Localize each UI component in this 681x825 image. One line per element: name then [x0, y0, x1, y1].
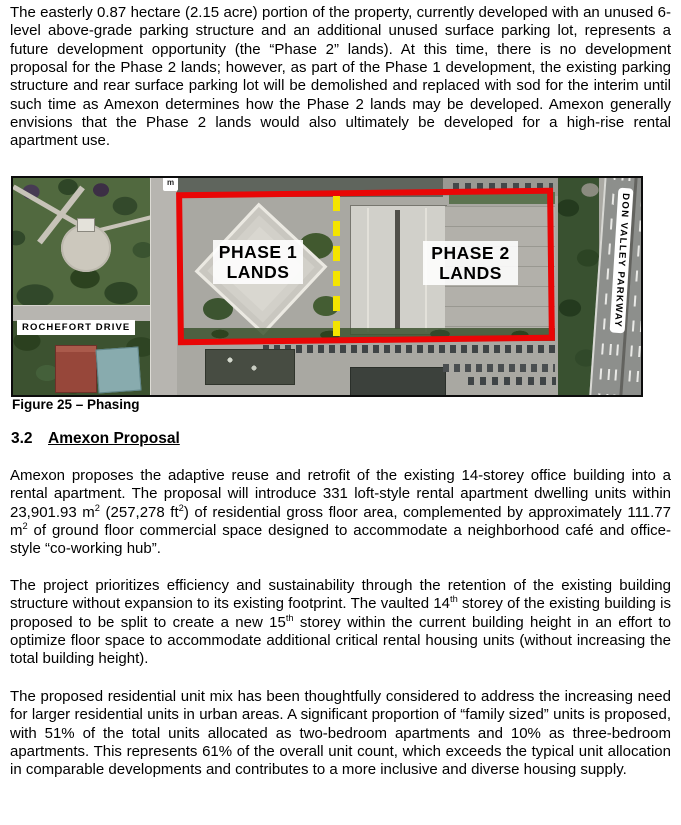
phase1-lands-label: PHASE 1 LANDS — [213, 240, 303, 284]
parked-cars-row — [468, 377, 556, 385]
map-marker-label: m — [163, 178, 178, 191]
phase1-label-line2: LANDS — [213, 262, 303, 282]
document-page: The easterly 0.87 hectare (2.15 acre) po… — [0, 0, 681, 825]
phase2-label-line2: LANDS — [423, 263, 518, 283]
low-rise-building — [350, 367, 446, 395]
teal-roof-building — [96, 347, 142, 394]
phase2-label-line1: PHASE 2 — [423, 243, 518, 263]
figure-25-phasing: PHASE 1 LANDS PHASE 2 LANDS ROCHEFORT DR… — [11, 176, 643, 397]
aerial-photo: PHASE 1 LANDS PHASE 2 LANDS ROCHEFORT DR… — [13, 178, 641, 395]
phase2-lands-label: PHASE 2 LANDS — [423, 241, 518, 285]
side-street — [150, 178, 179, 395]
red-roof-building — [55, 345, 97, 393]
section-heading: 3.2Amexon Proposal — [11, 430, 180, 448]
paragraph-unit-mix: The proposed residential unit mix has be… — [10, 688, 671, 780]
phase-divider-line — [333, 196, 340, 337]
paragraph-phase2-lands: The easterly 0.87 hectare (2.15 acre) po… — [10, 4, 671, 151]
phase1-label-line1: PHASE 1 — [213, 242, 303, 262]
section-number: 3.2 — [11, 430, 48, 448]
paragraph-efficiency: The project prioritizes efficiency and s… — [10, 577, 671, 669]
parked-cars-row — [263, 345, 555, 353]
park-pavilion — [77, 218, 95, 232]
figure-caption: Figure 25 – Phasing — [12, 397, 140, 412]
low-rise-building — [205, 349, 295, 385]
section-title: Amexon Proposal — [48, 430, 180, 447]
paragraph-proposal: Amexon proposes the adaptive reuse and r… — [10, 467, 671, 559]
rochefort-drive-label: ROCHEFORT DRIVE — [17, 320, 135, 335]
parked-cars-row — [443, 364, 555, 372]
